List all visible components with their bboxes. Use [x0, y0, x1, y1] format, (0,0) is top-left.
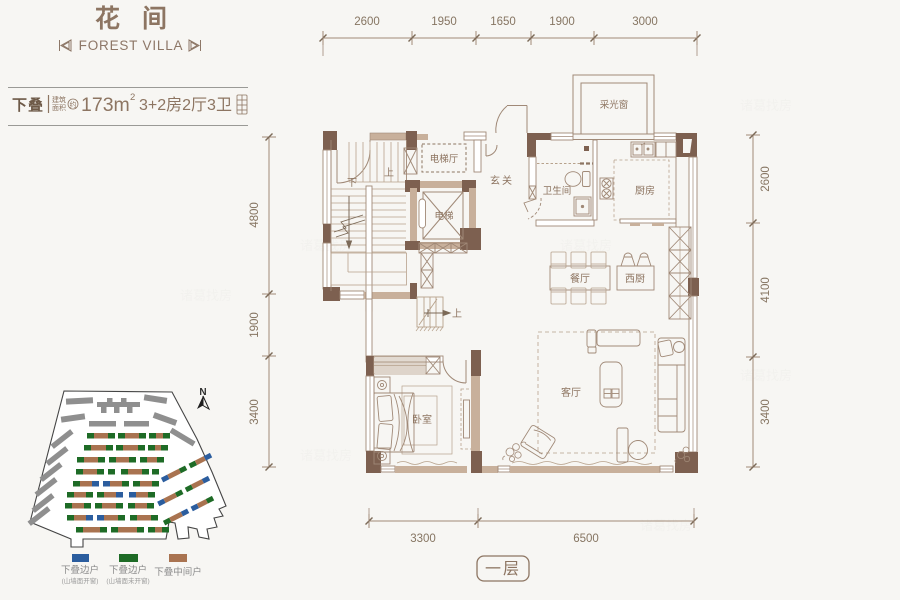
svg-text:诸葛找房: 诸葛找房	[560, 238, 612, 253]
svg-text:采光窗: 采光窗	[600, 99, 629, 111]
svg-text:诸葛找房: 诸葛找房	[300, 238, 352, 253]
svg-text:4100: 4100	[760, 277, 772, 303]
svg-text:玄关: 玄关	[490, 174, 514, 187]
svg-text:6500: 6500	[573, 533, 599, 545]
svg-text:上: 上	[452, 308, 462, 320]
svg-text:卧室: 卧室	[412, 413, 432, 426]
svg-text:1950: 1950	[431, 16, 457, 28]
svg-text:(山墙面未开窗): (山墙面未开窗)	[106, 576, 149, 585]
svg-text:173m: 173m	[81, 94, 130, 116]
svg-text:电梯: 电梯	[434, 210, 454, 222]
svg-text:约: 约	[70, 100, 77, 109]
svg-text:电梯厅: 电梯厅	[430, 153, 459, 165]
svg-text:诸葛找房: 诸葛找房	[640, 518, 692, 533]
svg-text:西厨: 西厨	[625, 273, 645, 285]
svg-text:3400: 3400	[760, 399, 772, 425]
svg-text:间: 间	[142, 5, 167, 33]
svg-text:诸葛找房: 诸葛找房	[740, 368, 792, 383]
svg-text:厨房: 厨房	[635, 184, 655, 197]
svg-text:1900: 1900	[549, 16, 575, 28]
svg-text:诸葛找房: 诸葛找房	[300, 448, 352, 463]
svg-text:3300: 3300	[410, 533, 436, 545]
svg-text:诸葛找房: 诸葛找房	[180, 288, 232, 303]
svg-text:下叠: 下叠	[12, 96, 44, 114]
svg-text:客厅: 客厅	[561, 386, 581, 399]
svg-text:卫生间: 卫生间	[543, 185, 572, 197]
svg-text:下: 下	[347, 178, 357, 189]
svg-text:2600: 2600	[760, 166, 772, 192]
svg-text:2600: 2600	[354, 16, 380, 28]
svg-text:1900: 1900	[249, 312, 261, 338]
svg-text:3400: 3400	[249, 399, 261, 425]
svg-text:一层: 一层	[485, 561, 521, 578]
svg-text:诸葛找房: 诸葛找房	[740, 98, 792, 113]
svg-text:2: 2	[130, 92, 135, 103]
svg-text:下叠中间户: 下叠中间户	[154, 566, 202, 578]
svg-text:(山墙面开窗): (山墙面开窗)	[62, 576, 99, 585]
svg-text:餐厅: 餐厅	[570, 272, 590, 285]
svg-text:下叠边户: 下叠边户	[61, 564, 99, 576]
svg-text:花: 花	[95, 5, 120, 33]
svg-text:上: 上	[384, 167, 394, 179]
svg-text:1650: 1650	[490, 16, 516, 28]
svg-text:FOREST VILLA: FOREST VILLA	[79, 38, 184, 53]
svg-text:面积: 面积	[52, 103, 66, 112]
svg-text:3000: 3000	[632, 16, 658, 28]
svg-text:4800: 4800	[249, 202, 261, 228]
svg-text:下叠边户: 下叠边户	[109, 564, 147, 576]
svg-text:建筑: 建筑	[52, 95, 66, 104]
svg-text:3+2房2厅3卫: 3+2房2厅3卫	[139, 96, 232, 114]
